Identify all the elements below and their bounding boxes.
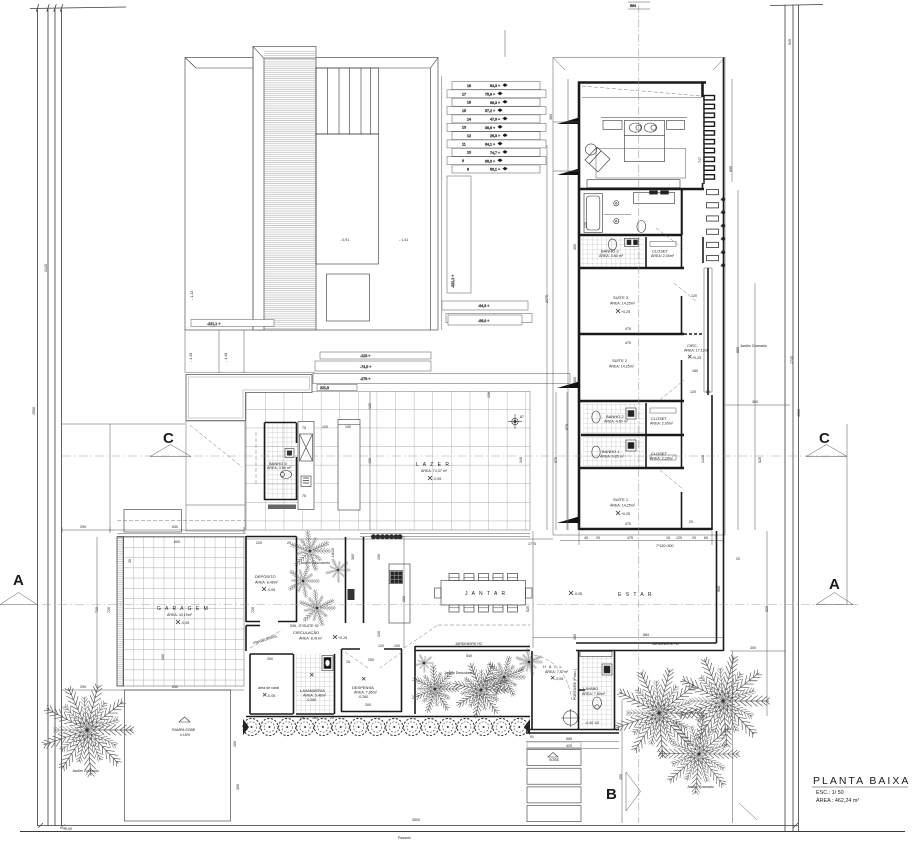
svg-text:A: A <box>13 572 24 589</box>
svg-text:-0,05: -0,05 <box>267 588 275 592</box>
svg-text:ÁREA: 2,29m²: ÁREA: 2,29m² <box>650 457 674 461</box>
svg-text:Jardim Gramado: Jardim Gramado <box>740 344 767 348</box>
svg-text:SOBE: SOBE <box>549 758 560 762</box>
svg-text:300: 300 <box>365 703 371 707</box>
svg-text:75,9 +: 75,9 + <box>485 92 495 96</box>
svg-text:74,7 +: 74,7 + <box>490 151 500 155</box>
svg-text:área de varal: área de varal <box>258 686 279 690</box>
svg-text:- 1,48: - 1,48 <box>224 353 228 362</box>
svg-text:12: 12 <box>467 134 471 138</box>
svg-text:ÁREA: 2,05m²: ÁREA: 2,05m² <box>650 422 674 426</box>
svg-text:300: 300 <box>573 634 577 640</box>
svg-text:+0,25: +0,25 <box>621 310 630 314</box>
svg-text:+0,25: +0,25 <box>692 356 701 360</box>
svg-text:JARDINEIRE H2: JARDINEIRE H2 <box>652 642 679 646</box>
svg-text:16: 16 <box>467 101 471 105</box>
svg-text:20: 20 <box>689 520 693 524</box>
svg-text:ÁREA: 7,47m²: ÁREA: 7,47m² <box>545 670 569 674</box>
svg-text:29,3 +: 29,3 + <box>490 134 500 138</box>
svg-text:525: 525 <box>526 606 530 612</box>
svg-text:C: C <box>163 430 174 447</box>
svg-text:600: 600 <box>174 540 180 544</box>
svg-text:ÁREA: 7,80m²: ÁREA: 7,80m² <box>582 692 606 696</box>
svg-text:Lâ/25: Lâ/25 <box>331 548 335 557</box>
svg-text:221,9: 221,9 <box>320 386 329 390</box>
svg-text:540: 540 <box>466 654 472 658</box>
svg-text:2735: 2735 <box>790 356 794 364</box>
svg-text:BANHO 3: BANHO 3 <box>601 249 619 254</box>
svg-text:15: 15 <box>346 660 350 664</box>
svg-text:Jardim Descoberto: Jardim Descoberto <box>444 671 474 675</box>
svg-text:-0,260: -0,260 <box>358 695 368 699</box>
svg-text:945: 945 <box>788 39 792 45</box>
svg-text:11: 11 <box>462 142 466 146</box>
svg-text:- 1,45: - 1,45 <box>189 353 193 362</box>
svg-text:200: 200 <box>267 657 273 661</box>
svg-text:30: 30 <box>128 559 132 563</box>
svg-text:100: 100 <box>394 644 400 648</box>
svg-text:-0,05: -0,05 <box>574 592 582 596</box>
svg-text:60: 60 <box>706 390 710 394</box>
svg-text:BANHO 1: BANHO 1 <box>602 449 620 454</box>
svg-text:E S T A R: E S T A R <box>618 592 653 598</box>
svg-text:960: 960 <box>717 586 721 592</box>
svg-text:340: 340 <box>519 457 523 463</box>
svg-text:120: 120 <box>690 390 696 394</box>
svg-text:15: 15 <box>462 109 466 113</box>
svg-text:130: 130 <box>487 392 491 398</box>
svg-text:B: B <box>606 786 617 803</box>
svg-text:300: 300 <box>750 646 756 650</box>
svg-text:L A Z E R: L A Z E R <box>416 462 450 468</box>
svg-text:ÁREA: 0,85 m²: ÁREA: 0,85 m² <box>600 455 625 459</box>
svg-text:ÁREA: 2,05m²: ÁREA: 2,05m² <box>651 254 675 258</box>
svg-text:475: 475 <box>627 536 633 540</box>
svg-text:LAVABO: LAVABO <box>583 686 598 691</box>
svg-text:ÁREA: 74,37 m²: ÁREA: 74,37 m² <box>421 469 448 473</box>
svg-text:4500: 4500 <box>32 407 36 415</box>
svg-text:365: 365 <box>351 554 355 560</box>
svg-text:ÁREA: 17,13m²: ÁREA: 17,13m² <box>684 349 710 353</box>
svg-text:120: 120 <box>691 294 697 298</box>
svg-text:ÁREA: 14,25m²: ÁREA: 14,25m² <box>610 302 636 306</box>
svg-text:4500: 4500 <box>797 409 801 417</box>
svg-text:CLOSET: CLOSET <box>651 451 668 456</box>
svg-text:RAMPA SOBE: RAMPA SOBE <box>172 728 196 732</box>
svg-text:720: 720 <box>251 607 255 613</box>
svg-text:ÁREA: 14,25m²: ÁREA: 14,25m² <box>610 504 636 508</box>
svg-text:+0,25: +0,25 <box>621 512 630 516</box>
svg-text:- 0,91: - 0,91 <box>340 238 349 242</box>
svg-text:15: 15 <box>666 536 670 540</box>
svg-text:C: C <box>819 430 830 447</box>
svg-text:BANHO 2: BANHO 2 <box>606 414 624 419</box>
svg-text:CIRCULAÇÃO: CIRCULAÇÃO <box>293 630 319 635</box>
svg-text:180: 180 <box>692 369 698 373</box>
svg-text:18: 18 <box>467 84 471 88</box>
svg-text:3500: 3500 <box>412 818 420 822</box>
svg-text:Passeio: Passeio <box>398 836 411 840</box>
svg-text:J A N T A R: J A N T A R <box>465 591 507 597</box>
svg-text:LAVANDERIA: LAVANDERIA <box>300 688 325 693</box>
svg-text:3120: 3120 <box>44 264 48 272</box>
svg-text:630: 630 <box>172 685 178 689</box>
svg-text:DEPÓSITO: DEPÓSITO <box>255 574 276 579</box>
svg-text:300: 300 <box>549 114 553 120</box>
svg-text:G A R A G E M: G A R A G E M <box>157 606 209 612</box>
svg-text:14: 14 <box>467 117 471 121</box>
svg-text:ESC.: 1/ 50: ESC.: 1/ 50 <box>816 790 844 796</box>
svg-text:300: 300 <box>236 784 240 790</box>
svg-text:66,3 +: 66,3 + <box>490 101 500 105</box>
svg-text:+0,00: +0,00 <box>63 827 72 831</box>
svg-text:200: 200 <box>368 658 374 662</box>
svg-text:300: 300 <box>573 244 577 250</box>
svg-text:-0,40 1/2: -0,40 1/2 <box>585 721 599 725</box>
svg-text:ÁREA: 43,19m²: ÁREA: 43,19m² <box>167 613 193 617</box>
svg-text:120: 120 <box>378 644 384 648</box>
svg-text:684: 684 <box>643 633 649 637</box>
svg-text:895: 895 <box>729 166 733 172</box>
svg-text:CLOSET: CLOSET <box>651 416 668 421</box>
svg-text:120: 120 <box>584 222 588 228</box>
svg-text:91: 91 <box>530 735 534 739</box>
svg-text:7*120=300: 7*120=300 <box>656 544 674 548</box>
svg-text:-0,05: -0,05 <box>267 694 275 698</box>
svg-text:SUÍTE 2: SUÍTE 2 <box>612 358 628 363</box>
svg-text:130: 130 <box>377 631 381 637</box>
svg-text:ÁREA: 8,46m²: ÁREA: 8,46m² <box>255 581 279 585</box>
svg-text:-0,260: -0,260 <box>306 698 316 702</box>
svg-text:ÁREA: 5,46m²: ÁREA: 5,46m² <box>303 694 327 698</box>
svg-text:-279 +: -279 + <box>360 377 370 381</box>
svg-text:-123 +: -123 + <box>360 354 370 358</box>
svg-text:-221,1 +: -221,1 + <box>207 322 220 326</box>
svg-text:-221,1 +: -221,1 + <box>451 275 455 288</box>
svg-text:630: 630 <box>172 525 178 529</box>
svg-text:60: 60 <box>704 536 708 540</box>
svg-text:67: 67 <box>520 415 524 419</box>
svg-text:ÁREA: 3,56 m²: ÁREA: 3,56 m² <box>267 466 292 470</box>
svg-text:585: 585 <box>566 737 572 741</box>
svg-text:65,3 +: 65,3 + <box>485 159 495 163</box>
svg-text:ÁREA : 462,24 m²: ÁREA : 462,24 m² <box>816 797 859 804</box>
svg-text:130: 130 <box>377 554 381 560</box>
svg-text:- 1,41: - 1,41 <box>399 238 408 242</box>
svg-text:i>15%: i>15% <box>180 733 191 737</box>
svg-text:H A L L: H A L L <box>543 664 563 669</box>
svg-text:17: 17 <box>462 92 466 96</box>
svg-text:475: 475 <box>625 522 631 526</box>
svg-text:625: 625 <box>758 457 762 463</box>
svg-text:160: 160 <box>233 741 237 747</box>
svg-text:20: 20 <box>736 557 740 561</box>
svg-text:9: 9 <box>462 159 464 163</box>
svg-text:CLOSET: CLOSET <box>652 249 669 254</box>
svg-text:SUÍTE 3: SUÍTE 3 <box>613 295 629 300</box>
svg-text:-0,05: -0,05 <box>555 677 563 681</box>
svg-text:220: 220 <box>256 541 262 545</box>
svg-text:20: 20 <box>287 541 291 545</box>
svg-text:-89,3 +: -89,3 + <box>478 319 489 323</box>
svg-text:84,3 +: 84,3 + <box>490 84 500 88</box>
svg-text:10: 10 <box>467 151 471 155</box>
svg-text:160: 160 <box>161 654 165 660</box>
svg-text:38,6 +: 38,6 + <box>485 126 495 130</box>
svg-text:ÁREA: 14,25m²: ÁREA: 14,25m² <box>609 365 635 369</box>
svg-text:-0,05: -0,05 <box>181 621 189 625</box>
svg-text:JARDINEIRE H2: JARDINEIRE H2 <box>455 642 482 646</box>
svg-text:- 1,13: - 1,13 <box>190 291 194 300</box>
svg-text:ÁREA: 7,85m²: ÁREA: 7,85m² <box>354 691 378 695</box>
svg-text:56,1 +: 56,1 + <box>490 168 500 172</box>
svg-text:536, JT/SUITE 92: 536, JT/SUITE 92 <box>290 624 319 628</box>
svg-text:ÁREA: 8,41m²: ÁREA: 8,41m² <box>299 637 323 641</box>
svg-text:120: 120 <box>322 425 328 429</box>
svg-text:47,9 +: 47,9 + <box>490 118 500 122</box>
svg-text:300: 300 <box>752 400 758 404</box>
svg-text:8: 8 <box>467 167 469 171</box>
svg-text:290: 290 <box>80 685 86 689</box>
svg-text:290: 290 <box>80 525 86 529</box>
svg-text:40: 40 <box>584 536 588 540</box>
svg-text:ÁREA: 4,60 m²: ÁREA: 4,60 m² <box>599 254 624 258</box>
svg-text:120: 120 <box>676 536 682 540</box>
svg-text:DESPENSA: DESPENSA <box>352 685 374 690</box>
svg-text:20: 20 <box>596 536 600 540</box>
svg-text:1775: 1775 <box>528 542 536 546</box>
svg-text:475: 475 <box>625 327 631 331</box>
svg-text:84,1 +: 84,1 + <box>485 143 495 147</box>
svg-text:Jardim Gramado: Jardim Gramado <box>687 785 714 789</box>
svg-text:A: A <box>829 576 840 593</box>
svg-text:100: 100 <box>345 425 351 429</box>
svg-text:594: 594 <box>630 4 636 8</box>
svg-text:CIRC.: CIRC. <box>687 343 698 348</box>
svg-text:+0,25: +0,25 <box>338 636 347 640</box>
svg-text:450: 450 <box>619 774 623 780</box>
svg-text:ÁREA: 4,60 m²: ÁREA: 4,60 m² <box>604 420 629 424</box>
svg-text:75: 75 <box>302 494 306 498</box>
svg-text:475: 475 <box>625 341 631 345</box>
svg-text:720: 720 <box>107 607 111 613</box>
svg-text:20: 20 <box>692 536 696 540</box>
svg-text:57,2 +: 57,2 + <box>485 109 495 113</box>
svg-text:-0,05: -0,05 <box>433 477 441 481</box>
svg-text:-74,5 +: -74,5 + <box>360 365 371 369</box>
svg-text:SUÍTE 1: SUÍTE 1 <box>613 497 629 502</box>
svg-text:13: 13 <box>462 126 466 130</box>
svg-text:PLANTA BAIXA: PLANTA BAIXA <box>813 775 910 787</box>
svg-text:PORTA/RE (Posic.): PORTA/RE (Posic.) <box>573 669 577 700</box>
svg-text:-94,3 +: -94,3 + <box>478 304 489 308</box>
svg-text:Jardim Gramado: Jardim Gramado <box>72 769 99 773</box>
svg-text:300: 300 <box>573 377 577 383</box>
svg-text:75: 75 <box>302 426 306 430</box>
svg-text:747: 747 <box>698 157 702 163</box>
